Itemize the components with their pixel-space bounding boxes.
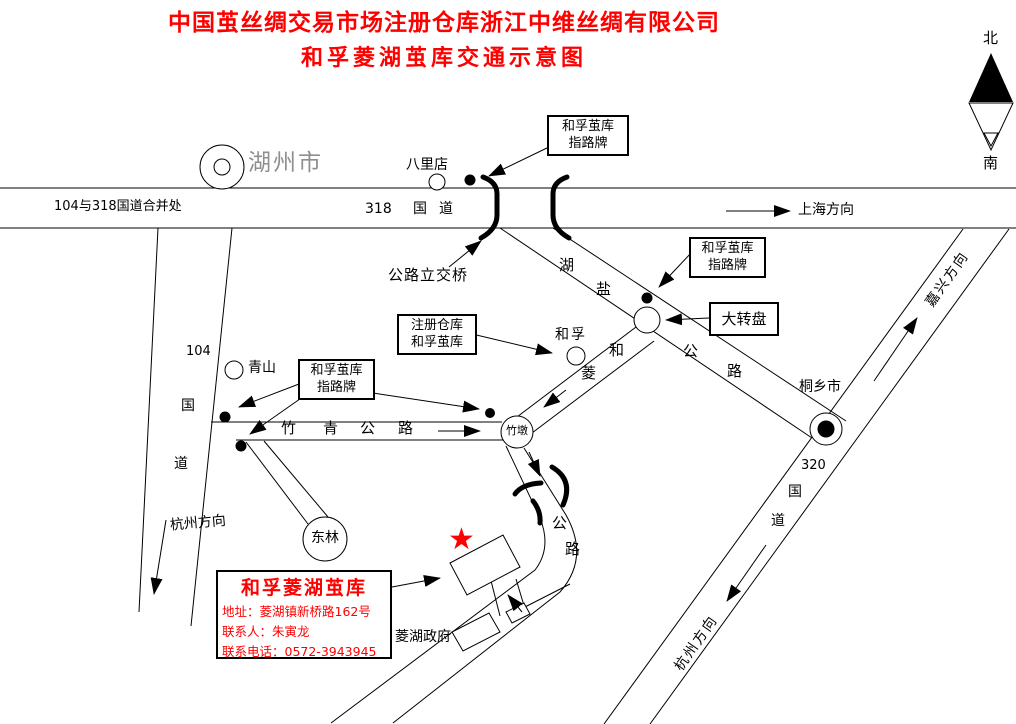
signboard-dot-1 bbox=[465, 175, 476, 186]
interchange-bridge-left-mark bbox=[481, 177, 497, 238]
roads bbox=[0, 188, 1016, 724]
road-huyan-char-1: 湖 bbox=[559, 257, 574, 274]
arrow-heling-flow bbox=[544, 390, 566, 407]
guideboard-sign-3-line1: 和孚茧库 bbox=[303, 363, 370, 380]
road-merge-note: 104与318国道合并处 bbox=[54, 200, 182, 214]
warehouse-address: 地址：菱湖镇新桥路162号 bbox=[222, 601, 390, 620]
arrow-guideboard2-to-dot bbox=[659, 252, 692, 287]
road-zhuqing-char-1: 竹 bbox=[281, 420, 296, 437]
map-subtitle: 和孚菱湖茧库交通示意图 bbox=[0, 40, 888, 72]
map-linework bbox=[0, 0, 1016, 724]
road-318-number: 318 bbox=[365, 202, 392, 217]
qingshan-circle-icon bbox=[225, 361, 243, 379]
linghu-government-label: 菱湖政府 bbox=[395, 630, 451, 645]
road-320-guo: 国 bbox=[788, 485, 802, 500]
arrow-jiaxing-flow bbox=[874, 318, 917, 381]
arrow-hangzhou-320-flow bbox=[727, 545, 766, 601]
warehouse-star-icon: ★ bbox=[448, 525, 475, 555]
arrow-roundabout-label bbox=[666, 318, 709, 320]
compass-south-label: 南 bbox=[983, 155, 998, 172]
landmark-circles bbox=[200, 145, 842, 561]
arrow-south-flow bbox=[529, 452, 540, 476]
map-header: 中国茧丝绸交易市场注册仓库浙江中维丝绸有限公司 和孚菱湖茧库交通示意图 bbox=[0, 3, 888, 72]
road-320-line-b bbox=[650, 229, 1009, 724]
road-320-number: 320 bbox=[801, 459, 826, 473]
town-hefu-label: 和孚 bbox=[555, 328, 587, 343]
road-104-dao: 道 bbox=[174, 457, 188, 472]
city-tongxiang-label: 桐乡市 bbox=[799, 380, 841, 395]
guideboard-sign-2-line2: 指路牌 bbox=[694, 258, 761, 275]
road-104-guo: 国 bbox=[181, 399, 195, 414]
interchange-bridge-right-mark bbox=[553, 177, 569, 238]
shanghai-direction-label: 上海方向 bbox=[798, 203, 854, 218]
warehouse-phone: 联系电话：0572-3943945 bbox=[222, 641, 390, 660]
compass-north-label: 北 bbox=[983, 30, 998, 47]
town-donglin-label: 东林 bbox=[310, 531, 340, 546]
arrow-guideboard3-to-dot3 bbox=[239, 384, 299, 407]
map-title: 中国茧丝绸交易市场注册仓库浙江中维丝绸有限公司 bbox=[0, 3, 888, 37]
road-zhuqing-char-2: 青 bbox=[323, 420, 338, 437]
road-104-line-a bbox=[139, 228, 158, 612]
compass-north-triangle-icon bbox=[969, 53, 1013, 102]
signboard-dot-2 bbox=[642, 293, 653, 304]
guideboard-sign-1: 和孚茧库 指路牌 bbox=[547, 115, 629, 156]
road-huyan-char-2: 盐 bbox=[596, 281, 611, 298]
roundabout-circle-icon bbox=[634, 307, 660, 333]
road-104-number: 104 bbox=[186, 345, 211, 359]
town-qingshan-label: 青山 bbox=[248, 361, 276, 376]
tongxiang-inner-dot-icon bbox=[818, 421, 834, 437]
road-320-dao: 道 bbox=[771, 514, 785, 529]
signboard-dot-4 bbox=[236, 441, 247, 452]
road-104-line-b bbox=[191, 228, 232, 626]
balidian-circle-icon bbox=[429, 174, 445, 190]
hangzhou-direction-104-label: 杭州方向 bbox=[169, 516, 185, 534]
warehouse-access-line bbox=[523, 584, 570, 608]
traffic-sketch-map: 中国茧丝绸交易市场注册仓库浙江中维丝绸有限公司 和孚菱湖茧库交通示意图 北 南 … bbox=[0, 0, 1016, 724]
registered-warehouse-line1: 注册仓库 bbox=[402, 318, 472, 335]
guideboard-sign-2: 和孚茧库 指路牌 bbox=[689, 237, 766, 278]
interchange-label: 公路立交桥 bbox=[388, 267, 468, 284]
hefu-circle-icon bbox=[567, 347, 585, 365]
road-318-dao: 道 bbox=[439, 202, 453, 217]
arrow-hangzhou-104-flow bbox=[154, 520, 166, 594]
guideboard-sign-1-line2: 指路牌 bbox=[552, 136, 624, 153]
arrow-guideboard1-to-dot bbox=[489, 147, 549, 176]
road-heling-char-4: 路 bbox=[565, 541, 580, 558]
road-zhuqing-char-3: 公 bbox=[360, 420, 375, 437]
arrow-guideboard3-to-dot5 bbox=[366, 392, 479, 409]
road-heling-char-3: 公 bbox=[552, 515, 567, 532]
bridge-marks bbox=[481, 177, 569, 523]
guideboard-sign-2-line1: 和孚茧库 bbox=[694, 241, 761, 258]
city-huzhou-label: 湖州市 bbox=[248, 151, 323, 176]
arrow-interchange-label bbox=[449, 241, 481, 267]
road-huyan-char-4: 路 bbox=[727, 363, 742, 380]
south-bridge-mark-3 bbox=[533, 501, 540, 523]
guideboard-sign-3-line2: 指路牌 bbox=[303, 380, 370, 397]
huzhou-inner-circle-icon bbox=[214, 159, 230, 175]
road-huyan-char-3: 公 bbox=[683, 343, 698, 360]
road-heling-char-1: 和 bbox=[609, 342, 624, 359]
warehouse-info-box: 和孚菱湖茧库 地址：菱湖镇新桥路162号 联系人：朱寅龙 联系电话：0572-3… bbox=[216, 570, 392, 659]
roundabout-sign: 大转盘 bbox=[709, 302, 779, 336]
compass-icon bbox=[969, 53, 1013, 150]
registered-warehouse-sign: 注册仓库 和孚茧库 bbox=[397, 314, 477, 355]
road-donglin-line-a bbox=[246, 442, 308, 524]
town-zhudun-label: 竹墩 bbox=[501, 425, 533, 437]
road-heling-char-2: 菱 bbox=[581, 365, 596, 382]
road-318-guo: 国 bbox=[413, 202, 427, 217]
road-heling-line-b bbox=[528, 341, 654, 436]
road-320-line-a bbox=[604, 229, 963, 724]
warehouse-contact: 联系人：朱寅龙 bbox=[222, 621, 390, 640]
registered-warehouse-line2: 和孚茧库 bbox=[402, 335, 472, 352]
town-balidian-label: 八里店 bbox=[406, 158, 448, 173]
south-bridge-mark-2 bbox=[552, 467, 567, 505]
warehouse-name: 和孚菱湖茧库 bbox=[218, 573, 390, 600]
arrow-infobox-to-warehouse bbox=[392, 578, 440, 587]
guideboard-sign-1-line1: 和孚茧库 bbox=[552, 119, 624, 136]
arrow-registered-to-hefu bbox=[468, 333, 552, 353]
road-zhuqing-char-4: 路 bbox=[398, 420, 413, 437]
signboard-dot-3 bbox=[220, 412, 231, 423]
signboard-dot-5 bbox=[485, 408, 495, 418]
guideboard-sign-3: 和孚茧库 指路牌 bbox=[298, 359, 375, 400]
